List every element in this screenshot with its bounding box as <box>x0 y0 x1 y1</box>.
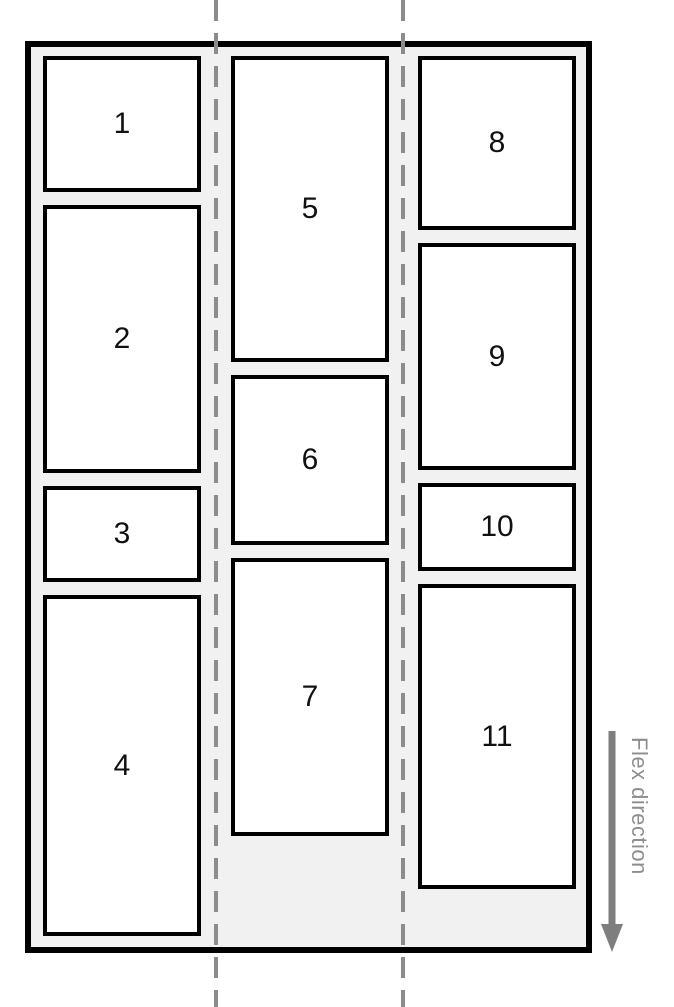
flex-column-2: 5 6 7 <box>231 56 389 836</box>
flex-item: 3 <box>43 486 201 582</box>
flex-column-1: 1 2 3 4 <box>43 56 201 936</box>
flex-item: 8 <box>418 56 576 230</box>
flex-item: 1 <box>43 56 201 192</box>
flex-item: 10 <box>418 483 576 571</box>
flex-direction-annotation: Flex direction <box>598 726 660 966</box>
flexbox-diagram: 1 2 3 4 5 6 7 8 9 10 11 Flex direction <box>0 0 674 1007</box>
flex-item: 5 <box>231 56 389 362</box>
arrow-down-icon <box>598 728 626 954</box>
flex-item: 9 <box>418 243 576 470</box>
flex-direction-label: Flex direction <box>626 737 652 875</box>
column-guide-line-1 <box>214 0 218 1007</box>
flex-column-3: 8 9 10 11 <box>418 56 576 889</box>
flex-item: 11 <box>418 584 576 889</box>
flex-container: 1 2 3 4 5 6 7 8 9 10 11 <box>25 41 592 953</box>
flex-item: 2 <box>43 205 201 473</box>
flex-item: 7 <box>231 558 389 836</box>
flex-item: 6 <box>231 375 389 545</box>
flex-item: 4 <box>43 595 201 936</box>
column-guide-line-2 <box>401 0 405 1007</box>
